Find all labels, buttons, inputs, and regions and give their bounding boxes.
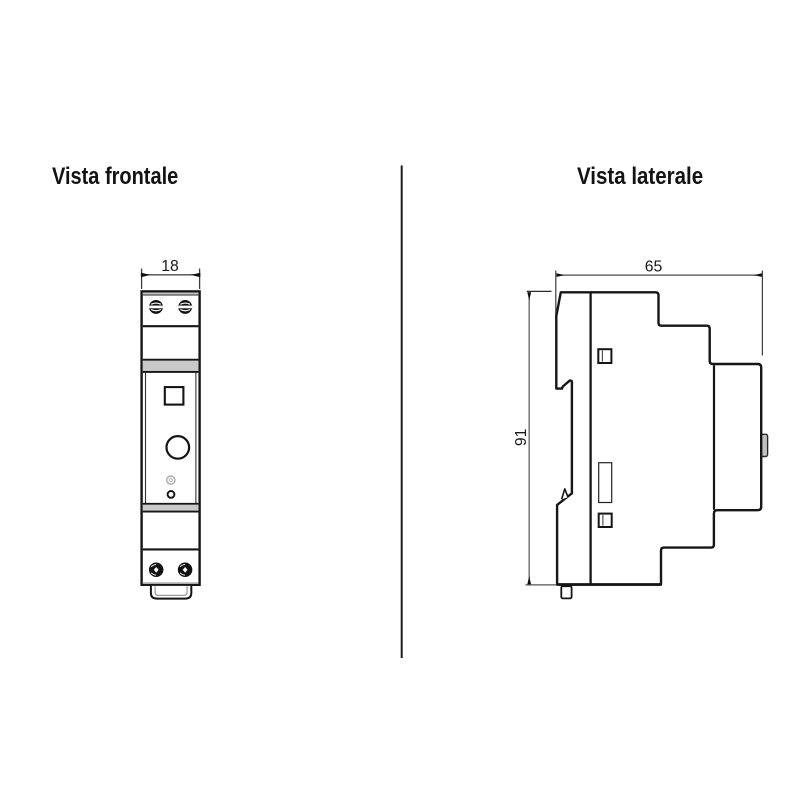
svg-text:65: 65 (645, 258, 663, 275)
svg-text:91: 91 (513, 428, 530, 446)
svg-text:18: 18 (161, 258, 179, 275)
